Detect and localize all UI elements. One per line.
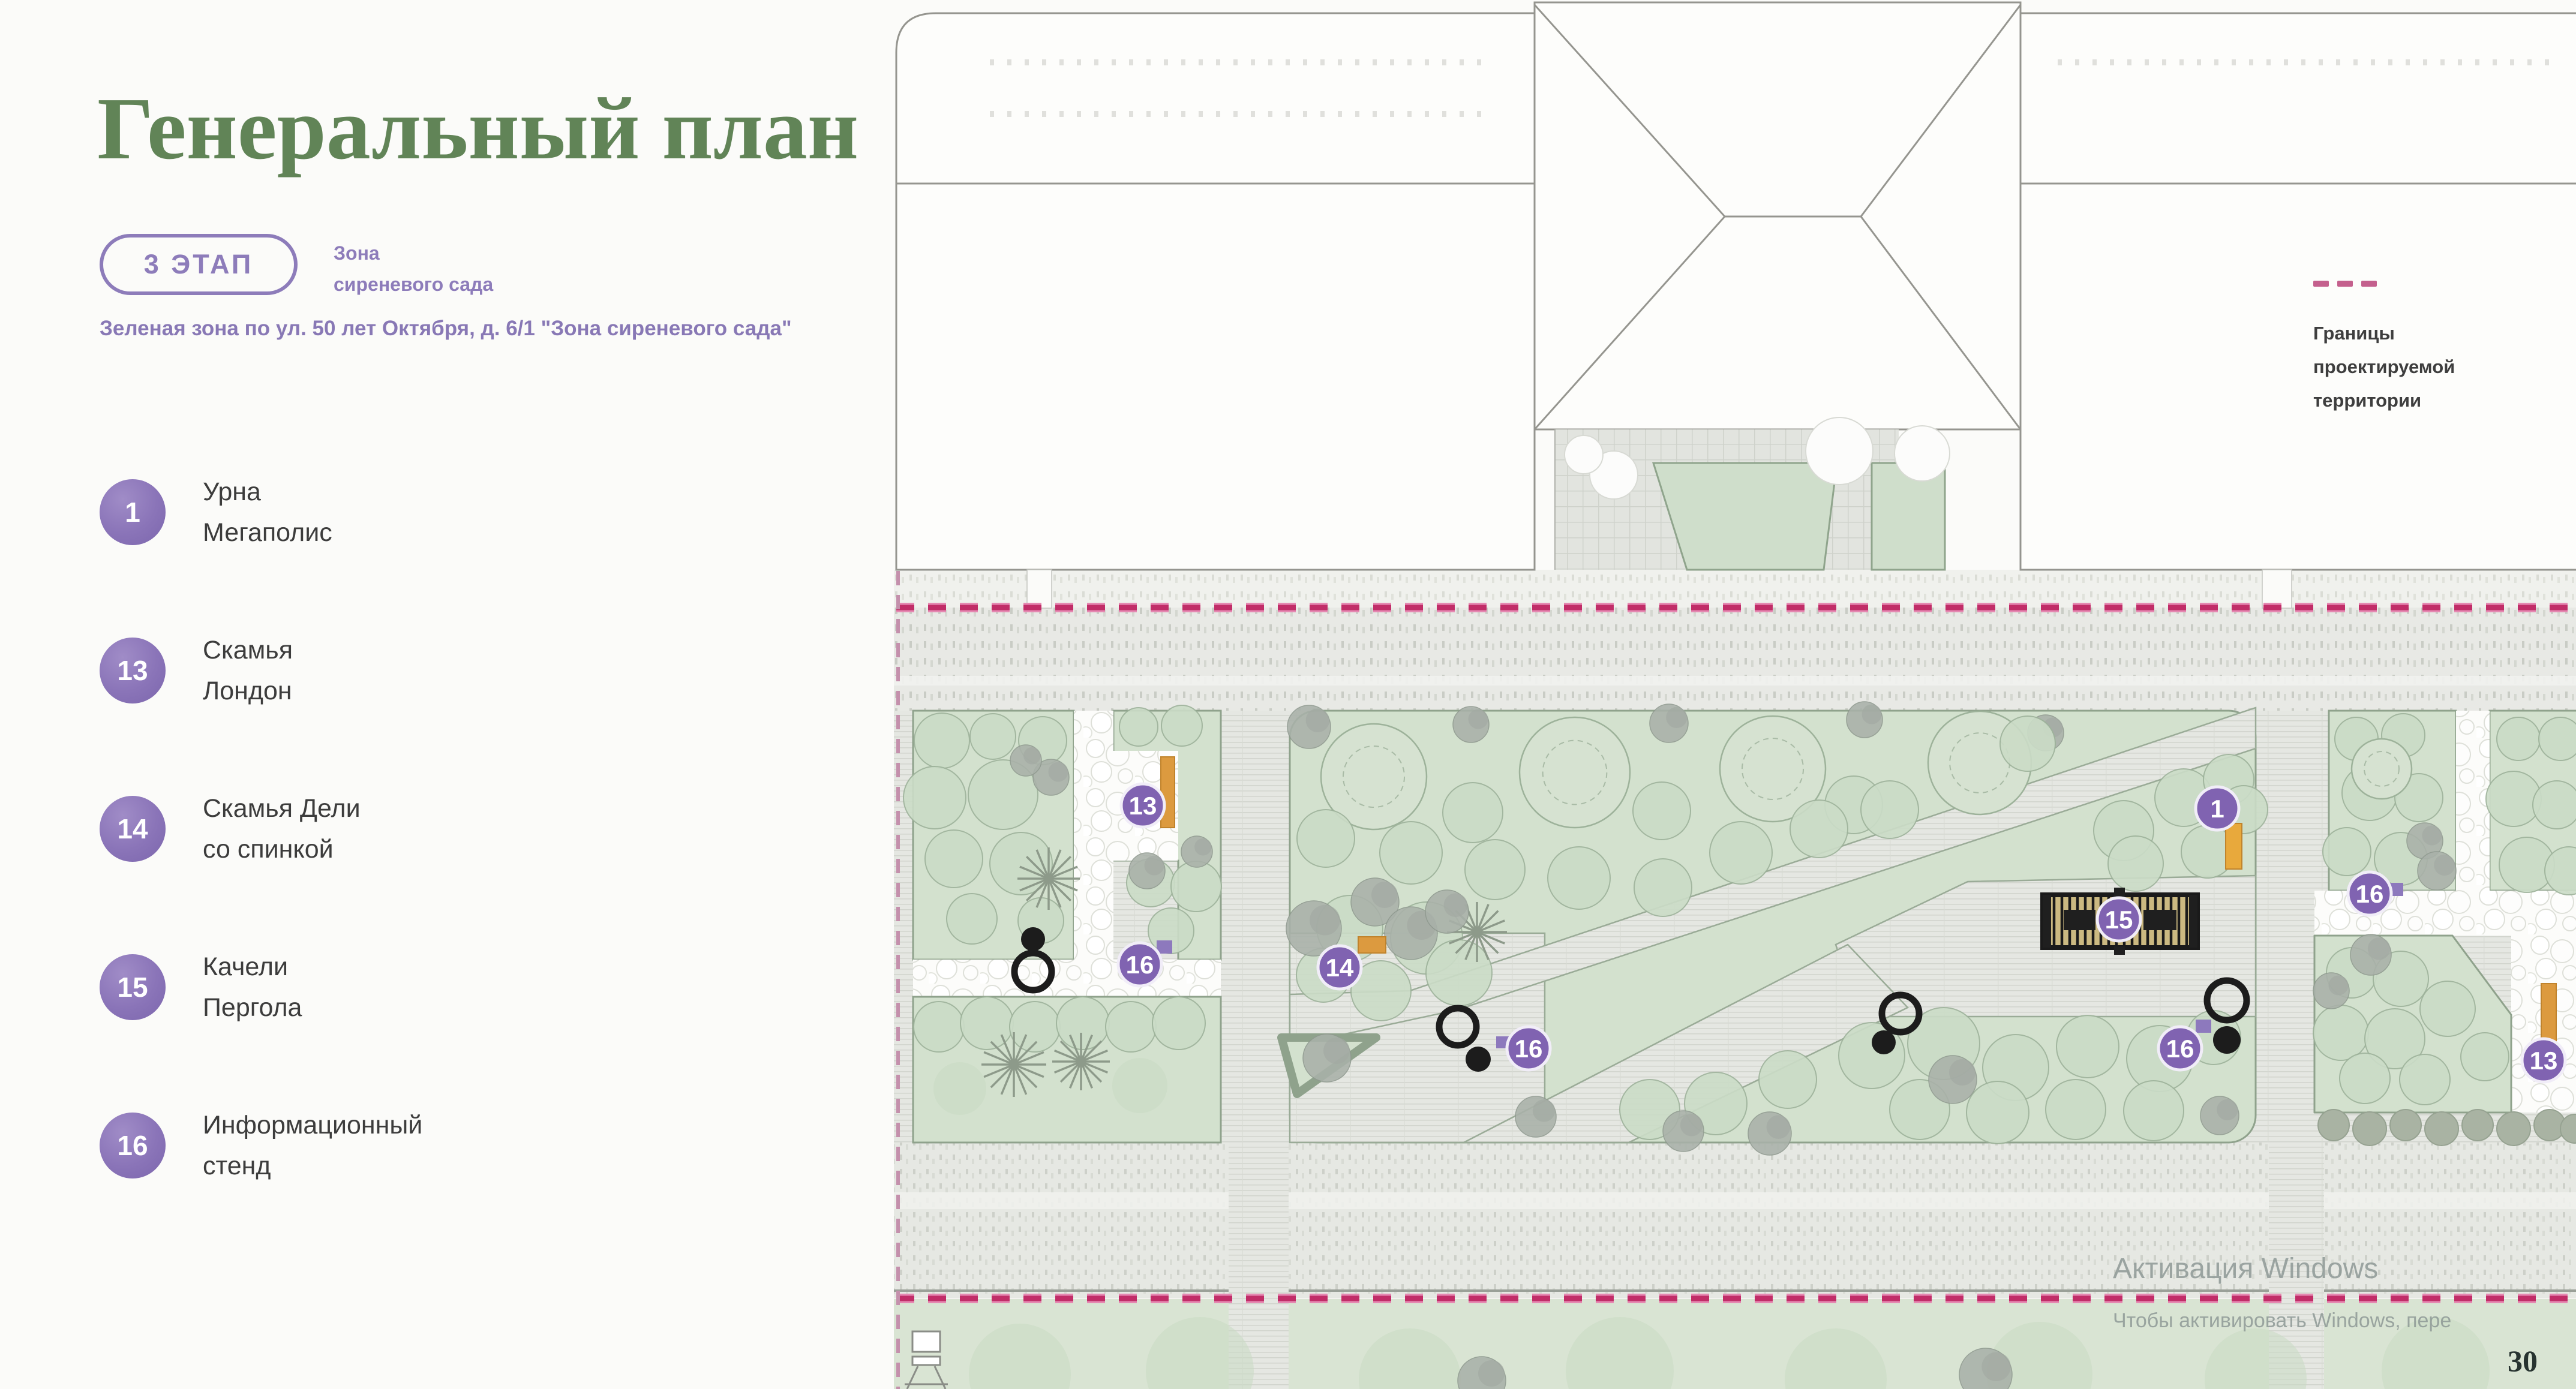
map-marker-14: 14 [1318, 946, 1361, 989]
urn-symbol [2226, 823, 2242, 869]
map-marker-1: 1 [2196, 787, 2239, 830]
watermark-line1: Активация Windows [2113, 1252, 2451, 1285]
svg-text:16: 16 [1515, 1035, 1543, 1063]
master-plan-page: Генеральный план 3 ЭТАП Зона сиреневого … [0, 0, 2576, 1389]
map-marker-16: 16 [2158, 1027, 2202, 1070]
bench-london-symbol [1161, 757, 1175, 828]
svg-text:13: 13 [1129, 792, 1157, 820]
windows-activation-watermark: Активация Windows Чтобы активировать Win… [2113, 1252, 2451, 1333]
map-marker-16: 16 [2348, 872, 2391, 915]
boundary-legend-line2: проектируемой [2313, 350, 2455, 384]
svg-text:16: 16 [1126, 951, 1154, 979]
map-marker-16: 16 [1118, 943, 1161, 986]
svg-text:14: 14 [1326, 954, 1354, 982]
page-number: 30 [2508, 1343, 2538, 1378]
map-marker-15: 15 [2097, 898, 2140, 941]
map-marker-13: 13 [1121, 784, 1164, 827]
boundary-dashes-icon [2313, 281, 2455, 287]
svg-text:1: 1 [2210, 795, 2224, 823]
svg-text:16: 16 [2166, 1035, 2194, 1063]
watermark-line2: Чтобы активировать Windows, пере [2113, 1309, 2451, 1333]
boundary-legend: Границы проектируемой территории [2313, 281, 2455, 417]
map-marker-16: 16 [1507, 1027, 1550, 1070]
boundary-legend-line1: Границы [2313, 317, 2455, 350]
bench-delhi-symbol [1358, 937, 1386, 953]
svg-text:15: 15 [2105, 906, 2133, 934]
boundary-legend-line3: территории [2313, 384, 2455, 417]
site-plan-drawing: 13161416151161613 [894, 0, 2576, 1389]
svg-text:13: 13 [2530, 1047, 2558, 1075]
map-marker-13: 13 [2522, 1039, 2565, 1082]
site-plan-area: 13161416151161613 Границы проектируемой … [0, 0, 2576, 1389]
svg-text:16: 16 [2356, 880, 2384, 908]
